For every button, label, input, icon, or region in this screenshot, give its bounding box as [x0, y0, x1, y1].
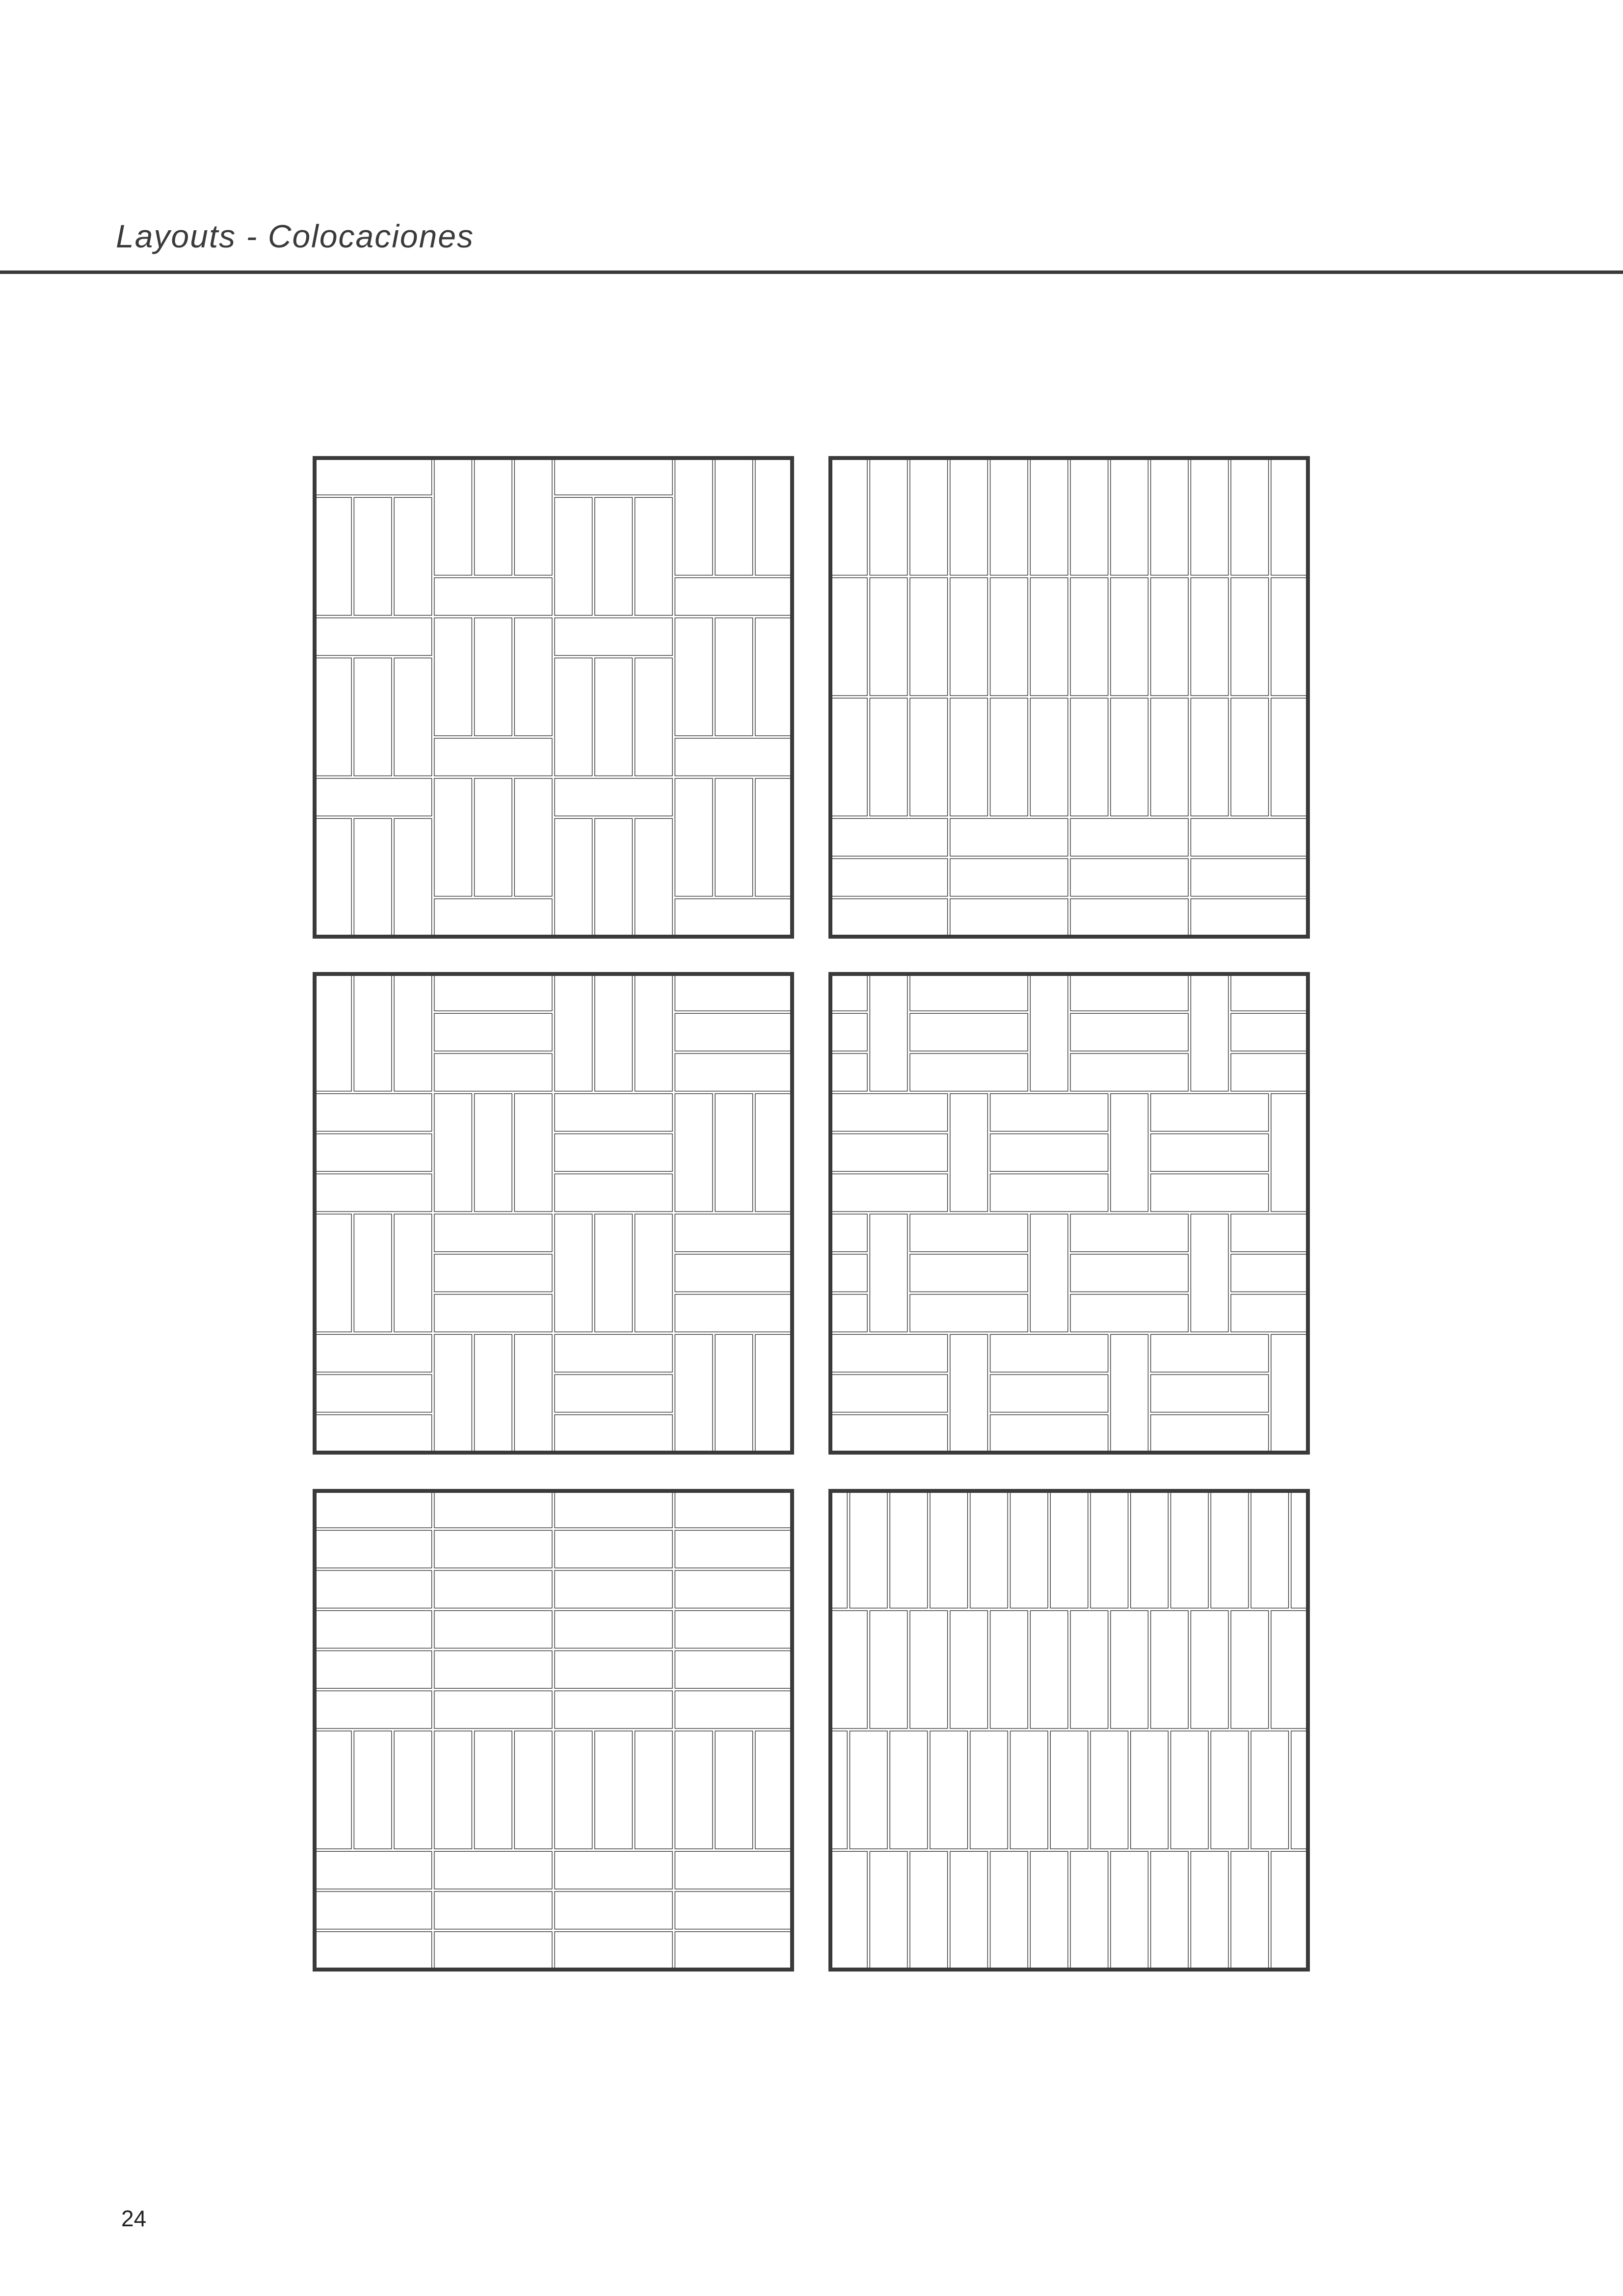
tile: [635, 497, 673, 615]
tile: [1271, 1094, 1309, 1212]
tile: [910, 1013, 1028, 1051]
tile: [950, 458, 988, 575]
tile: [314, 1334, 432, 1372]
tile: [1030, 1214, 1068, 1332]
tile: [434, 1731, 472, 1849]
tile: [354, 658, 392, 776]
tile: [595, 1731, 633, 1849]
tile: [950, 1094, 988, 1212]
tile: [950, 1334, 988, 1452]
tile: [434, 1651, 552, 1689]
tile: [675, 1651, 793, 1689]
tile: [514, 1731, 552, 1849]
tile: [950, 698, 988, 816]
tile: [314, 1134, 432, 1172]
tile: [675, 1214, 793, 1252]
tile-pattern-diagram-6-vertical-running-bond: [828, 1489, 1310, 1972]
tile: [434, 1691, 552, 1729]
tile: [434, 1295, 552, 1332]
tile: [475, 458, 512, 575]
tile: [910, 1053, 1028, 1091]
tile: [1070, 1851, 1108, 1969]
tile: [1070, 578, 1108, 696]
tile: [715, 1094, 753, 1212]
tile: [870, 578, 907, 696]
tile: [1211, 1490, 1249, 1608]
tile: [830, 1174, 948, 1212]
tile: [434, 618, 472, 736]
tile: [830, 698, 868, 816]
tile: [990, 1334, 1108, 1372]
tile: [990, 578, 1028, 696]
tile: [990, 698, 1028, 816]
tile: [314, 618, 432, 656]
tile: [314, 779, 432, 816]
tile: [870, 698, 907, 816]
tile: [910, 1214, 1028, 1252]
tile: [555, 1932, 672, 1970]
tile: [1050, 1731, 1088, 1849]
tile: [555, 1415, 672, 1453]
pattern-drawing-vertical-pin-with-stacked-horizontals: [828, 972, 1310, 1455]
tile: [1111, 458, 1148, 575]
tile: [675, 1932, 793, 1970]
tile: [354, 1214, 392, 1332]
tile: [514, 1094, 552, 1212]
tile: [870, 458, 907, 575]
tile: [1171, 1731, 1208, 1849]
tile: [1050, 1490, 1088, 1608]
tile: [910, 973, 1028, 1011]
tile: [675, 1851, 793, 1889]
tile: [675, 1053, 793, 1091]
tile: [715, 1334, 753, 1452]
tile: [1231, 973, 1310, 1011]
tile: [830, 859, 948, 896]
tile: [394, 1731, 432, 1849]
tile: [1191, 698, 1228, 816]
tile: [1251, 1490, 1289, 1608]
page-title: Layouts - Colocaciones: [116, 220, 474, 252]
tile: [555, 1134, 672, 1172]
tile: [910, 1851, 948, 1969]
tile: [1191, 899, 1308, 937]
tile: [555, 1731, 592, 1849]
tile: [595, 818, 633, 936]
tile: [675, 1295, 793, 1332]
tile: [990, 1611, 1028, 1729]
tile: [314, 1094, 432, 1132]
tile: [830, 578, 868, 696]
tile: [434, 1053, 552, 1091]
tile: [555, 1094, 672, 1132]
tile: [1151, 1134, 1269, 1172]
tile: [950, 859, 1068, 896]
tile: [514, 1334, 552, 1452]
tile: [434, 458, 472, 575]
tile: [675, 973, 793, 1011]
tile: [434, 1891, 552, 1929]
tile: [1151, 698, 1189, 816]
tile: [314, 1415, 432, 1453]
tile: [755, 1334, 793, 1452]
tile: [475, 779, 512, 896]
tile: [434, 1334, 472, 1452]
tile: [675, 1094, 713, 1212]
tile: [1271, 1611, 1309, 1729]
tile: [715, 458, 753, 575]
tile: [434, 1254, 552, 1292]
tile: [475, 1731, 512, 1849]
tile: [555, 1214, 592, 1332]
tile: [635, 658, 673, 776]
tile: [828, 1053, 867, 1091]
tile: [514, 779, 552, 896]
tile: [830, 1134, 948, 1172]
tile: [555, 1334, 672, 1372]
tile: [990, 458, 1028, 575]
tile: [1231, 1013, 1310, 1051]
tile: [1131, 1731, 1169, 1849]
tile: [1191, 973, 1228, 1091]
tile: [675, 1570, 793, 1608]
tile: [828, 973, 867, 1011]
pattern-drawing-vertical-running-bond: [828, 1489, 1310, 1972]
tile: [1271, 698, 1309, 816]
tile: [1070, 1254, 1188, 1292]
tile: [1191, 859, 1308, 896]
tile-pattern-diagram-5-horizontal-courses-with-vertical-band: [313, 1489, 794, 1972]
tile: [675, 1691, 793, 1729]
tile: [1010, 1490, 1048, 1608]
tile: [830, 1334, 948, 1372]
tile: [1151, 1334, 1269, 1372]
tile: [830, 1375, 948, 1412]
pattern-drawing-horizontal-courses-with-vertical-band: [313, 1489, 794, 1972]
tile: [555, 497, 592, 615]
tile: [314, 1530, 432, 1568]
tile: [434, 1530, 552, 1568]
tile: [1271, 578, 1309, 696]
tile: [1231, 1851, 1269, 1969]
pattern-drawing-basketweave: [313, 972, 794, 1455]
tile: [990, 1415, 1108, 1453]
tile: [595, 1214, 633, 1332]
tile: [828, 1295, 867, 1332]
tile: [434, 738, 552, 776]
tile: [555, 1530, 672, 1568]
tile: [1030, 1851, 1068, 1969]
tile: [1030, 973, 1068, 1091]
tile: [970, 1490, 1008, 1608]
tile: [434, 779, 472, 896]
tile: [434, 973, 552, 1011]
tile: [1231, 458, 1269, 575]
tile: [850, 1731, 887, 1849]
tile: [1111, 698, 1148, 816]
tile: [555, 1174, 672, 1212]
tile: [434, 1570, 552, 1608]
tile: [675, 1891, 793, 1929]
tile: [1231, 1214, 1310, 1252]
tile: [1070, 859, 1188, 896]
tile: [394, 1214, 432, 1332]
tile: [555, 818, 592, 936]
tile: [394, 497, 432, 615]
pattern-drawing-vertical-stack-weave-columns: [313, 456, 794, 939]
tile: [675, 578, 793, 616]
tile: [1151, 1611, 1189, 1729]
tile: [755, 618, 793, 736]
tile: [1111, 1334, 1148, 1452]
tile: [514, 458, 552, 575]
tile: [1070, 1053, 1188, 1091]
tile: [434, 899, 552, 937]
tile: [970, 1731, 1008, 1849]
tile: [830, 818, 948, 856]
tile: [675, 1731, 713, 1849]
tile: [314, 1891, 432, 1929]
tile: [1191, 818, 1308, 856]
tile: [1070, 1611, 1108, 1729]
tile: [828, 1214, 867, 1252]
tile: [1191, 578, 1228, 696]
tile: [434, 1214, 552, 1252]
tile: [990, 1851, 1028, 1969]
tile: [755, 458, 793, 575]
tile: [434, 1611, 552, 1648]
tile: [1151, 1851, 1189, 1969]
tile: [434, 1013, 552, 1051]
tile: [910, 1254, 1028, 1292]
tile: [1191, 458, 1228, 575]
tile: [755, 779, 793, 896]
tile: [930, 1490, 968, 1608]
tile: [555, 1490, 672, 1528]
tile: [828, 1013, 867, 1051]
tile: [830, 1851, 868, 1969]
tile: [394, 818, 432, 936]
tile: [1231, 1611, 1269, 1729]
tile: [1091, 1731, 1128, 1849]
tile: [314, 1214, 352, 1332]
tile: [1211, 1731, 1249, 1849]
tile: [595, 658, 633, 776]
header-rule: [0, 270, 1623, 274]
tile: [1231, 578, 1269, 696]
tile: [1231, 1254, 1310, 1292]
tile: [675, 1254, 793, 1292]
tile: [1070, 1295, 1188, 1332]
tile: [850, 1490, 887, 1608]
tile: [830, 1611, 868, 1729]
tile: [1231, 1295, 1310, 1332]
tile: [555, 779, 672, 816]
tile: [675, 779, 713, 896]
tile: [950, 899, 1068, 937]
tile: [1191, 1851, 1228, 1969]
tile: [675, 738, 793, 776]
tile: [1030, 458, 1068, 575]
tile: [555, 618, 672, 656]
tile: [828, 1254, 867, 1292]
tile: [870, 1214, 907, 1332]
tile: [595, 973, 633, 1091]
tile: [475, 1334, 512, 1452]
tile: [434, 1932, 552, 1970]
tile: [950, 578, 988, 696]
tile: [1030, 698, 1068, 816]
tile: [890, 1731, 928, 1849]
tile: [555, 1375, 672, 1412]
tile: [1171, 1490, 1208, 1608]
tile: [830, 1094, 948, 1132]
tile: [314, 1932, 432, 1970]
tile: [675, 1013, 793, 1051]
tile: [434, 1490, 552, 1528]
tile: [314, 1375, 432, 1412]
tile: [910, 578, 948, 696]
tile: [1111, 578, 1148, 696]
tile: [1231, 698, 1269, 816]
tile: [930, 1731, 968, 1849]
tile: [555, 1651, 672, 1689]
tile: [635, 973, 673, 1091]
tile: [1271, 1851, 1309, 1969]
tile: [950, 1851, 988, 1969]
tile: [314, 497, 352, 615]
tile: [555, 1891, 672, 1929]
tile-pattern-diagram-3-basketweave: [313, 972, 794, 1455]
page-number: 24: [121, 2207, 146, 2230]
pattern-drawing-stacked-verticals-over-horizontal-courses: [828, 456, 1310, 939]
tile: [314, 1174, 432, 1212]
tile: [354, 973, 392, 1091]
tile: [1151, 1174, 1269, 1212]
tile: [1070, 1013, 1188, 1051]
tile: [755, 1094, 793, 1212]
tile: [354, 1731, 392, 1849]
tile: [1070, 818, 1188, 856]
tile: [394, 973, 432, 1091]
tile: [434, 1851, 552, 1889]
tile: [314, 1611, 432, 1648]
tile: [354, 818, 392, 936]
tile: [595, 497, 633, 615]
tile: [830, 899, 948, 937]
tile: [394, 658, 432, 776]
tile: [990, 1134, 1108, 1172]
tile: [675, 458, 713, 575]
tile: [314, 1731, 352, 1849]
tile: [1111, 1094, 1148, 1212]
tile: [1131, 1490, 1169, 1608]
tile: [314, 1570, 432, 1608]
tile: [1070, 899, 1188, 937]
tile: [910, 1611, 948, 1729]
tile: [555, 973, 592, 1091]
tile: [675, 1490, 793, 1528]
tile: [1091, 1490, 1128, 1608]
tile: [475, 1094, 512, 1212]
tile: [870, 1611, 907, 1729]
tile: [1151, 1415, 1269, 1453]
tile-pattern-diagram-2-stacked-verticals-over-horizontal-courses: [828, 456, 1310, 939]
tile: [910, 1295, 1028, 1332]
tile-pattern-diagram-4-vertical-pin-with-stacked-horizontals: [828, 972, 1310, 1455]
tile: [870, 1851, 907, 1969]
tile: [755, 1731, 793, 1849]
tile: [314, 1691, 432, 1729]
tile: [555, 1851, 672, 1889]
tile: [354, 497, 392, 615]
tile: [910, 458, 948, 575]
tile: [434, 1094, 472, 1212]
tile: [990, 1174, 1108, 1212]
tile: [990, 1094, 1108, 1132]
tile: [314, 1851, 432, 1889]
tile: [715, 779, 753, 896]
tile: [314, 1651, 432, 1689]
tile: [830, 1415, 948, 1453]
tile: [715, 618, 753, 736]
tile: [1191, 1611, 1228, 1729]
tile: [514, 618, 552, 736]
tile: [475, 618, 512, 736]
tile-pattern-diagram-1-vertical-stack-weave-columns: [313, 456, 794, 939]
tile: [314, 973, 352, 1091]
tile: [675, 899, 793, 937]
tile: [1231, 1053, 1310, 1091]
tile: [675, 1611, 793, 1648]
tile: [635, 1214, 673, 1332]
tile: [1030, 578, 1068, 696]
tile: [890, 1490, 928, 1608]
tile: [1070, 1214, 1188, 1252]
tile: [1151, 458, 1189, 575]
tile: [950, 1611, 988, 1729]
tile: [1111, 1851, 1148, 1969]
tile: [635, 818, 673, 936]
tile: [1271, 458, 1309, 575]
tile: [1070, 458, 1108, 575]
tile: [314, 818, 352, 936]
tile: [675, 1334, 713, 1452]
tile: [675, 1530, 793, 1568]
tile: [555, 1611, 672, 1648]
tile: [830, 458, 868, 575]
tile: [314, 1490, 432, 1528]
tile: [990, 1375, 1108, 1412]
tile: [1271, 1334, 1309, 1452]
tile: [555, 658, 592, 776]
tile: [1070, 973, 1188, 1011]
tile: [910, 698, 948, 816]
tile: [675, 618, 713, 736]
tile: [314, 658, 352, 776]
tile: [555, 1691, 672, 1729]
tile: [1111, 1611, 1148, 1729]
tile: [635, 1731, 673, 1849]
tile: [1010, 1731, 1048, 1849]
tile: [1070, 698, 1108, 816]
tile: [314, 458, 432, 495]
tile: [1151, 578, 1189, 696]
tile: [1251, 1731, 1289, 1849]
tile: [434, 578, 552, 616]
tile: [1151, 1094, 1269, 1132]
tile: [555, 1570, 672, 1608]
